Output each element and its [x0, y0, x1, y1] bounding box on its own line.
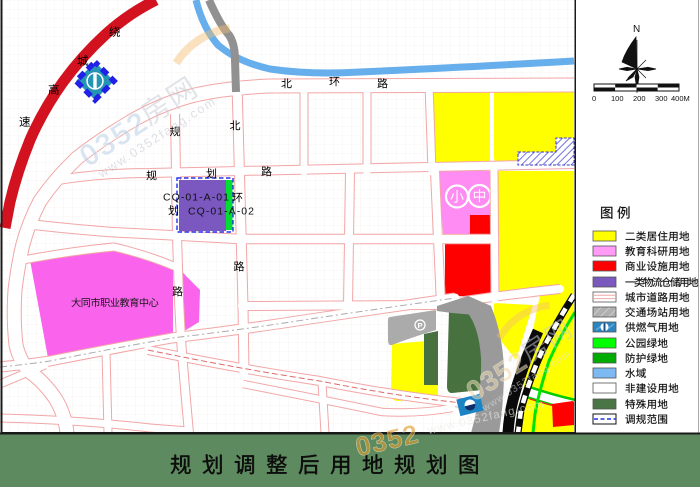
svg-text:0: 0 — [592, 94, 596, 103]
svg-text:N: N — [633, 24, 640, 35]
svg-text:300: 300 — [655, 94, 668, 103]
svg-text:400M: 400M — [671, 94, 690, 103]
svg-text:100: 100 — [611, 94, 624, 103]
svg-text:CQ-01-A-02: CQ-01-A-02 — [188, 206, 254, 218]
svg-text:P: P — [417, 321, 422, 330]
svg-text:200: 200 — [633, 94, 646, 103]
svg-text:CQ-01-A-01: CQ-01-A-01 — [163, 192, 229, 204]
